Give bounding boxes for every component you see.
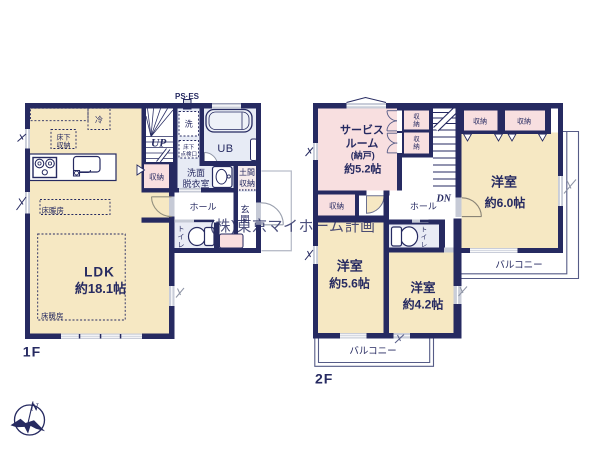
svg-text:イ: イ (421, 234, 428, 241)
svg-text:イ: イ (178, 234, 185, 241)
svg-text:ト: ト (421, 227, 428, 234)
svg-text:収納: 収納 (473, 117, 487, 126)
svg-text:ホール: ホール (410, 202, 437, 212)
svg-text:点検口: 点検口 (181, 150, 198, 158)
svg-text:洗: 洗 (185, 119, 193, 129)
svg-text:玄: 玄 (240, 204, 249, 215)
svg-text:収納: 収納 (149, 172, 164, 182)
svg-text:ホール: ホール (189, 202, 216, 212)
svg-text:1F: 1F (23, 344, 41, 360)
svg-text:床暖房: 床暖房 (41, 311, 64, 321)
svg-text:バルコニー: バルコニー (349, 346, 396, 357)
svg-text:収納: 収納 (329, 201, 344, 211)
svg-text:ルーム: ルーム (346, 137, 379, 150)
svg-text:床下: 床下 (183, 143, 195, 151)
svg-text:納: 納 (413, 119, 420, 128)
svg-text:洗面: 洗面 (187, 167, 205, 178)
svg-text:約4.2帖: 約4.2帖 (403, 297, 444, 312)
svg-text:UB: UB (217, 143, 233, 155)
svg-text:洋室: 洋室 (337, 259, 363, 274)
svg-text:床下: 床下 (57, 132, 71, 141)
svg-text:土間: 土間 (239, 167, 255, 177)
svg-text:約5.6帖: 約5.6帖 (329, 276, 370, 291)
svg-text:2F: 2F (315, 371, 333, 387)
svg-text:収: 収 (413, 113, 420, 121)
svg-text:UP: UP (151, 138, 167, 150)
svg-text:収: 収 (413, 135, 420, 143)
svg-text:約18.1帖: 約18.1帖 (75, 281, 126, 296)
svg-text:脱衣室: 脱衣室 (182, 178, 209, 189)
svg-text:収納: 収納 (517, 117, 531, 126)
svg-text:収納: 収納 (57, 140, 71, 149)
svg-text:DN: DN (436, 194, 452, 205)
svg-text:洋室: 洋室 (410, 280, 436, 295)
svg-text:床暖房: 床暖房 (42, 205, 65, 215)
svg-text:(株)東京マイホーム計画: (株)東京マイホーム計画 (210, 218, 376, 235)
svg-text:洋室: 洋室 (491, 175, 517, 190)
svg-text:収納: 収納 (239, 178, 255, 188)
svg-text:約5.2帖: 約5.2帖 (344, 162, 381, 176)
svg-text:レ: レ (421, 242, 428, 249)
svg-text:約6.0帖: 約6.0帖 (485, 195, 526, 210)
svg-text:ト: ト (178, 226, 185, 233)
svg-text:レ: レ (178, 242, 185, 249)
svg-text:サービス: サービス (340, 123, 384, 137)
svg-text:冷: 冷 (95, 115, 103, 125)
svg-text:納: 納 (413, 142, 420, 151)
svg-text:バルコニー: バルコニー (495, 260, 542, 271)
svg-text:LDK: LDK (84, 265, 115, 280)
svg-text:(納戸): (納戸) (351, 150, 375, 161)
